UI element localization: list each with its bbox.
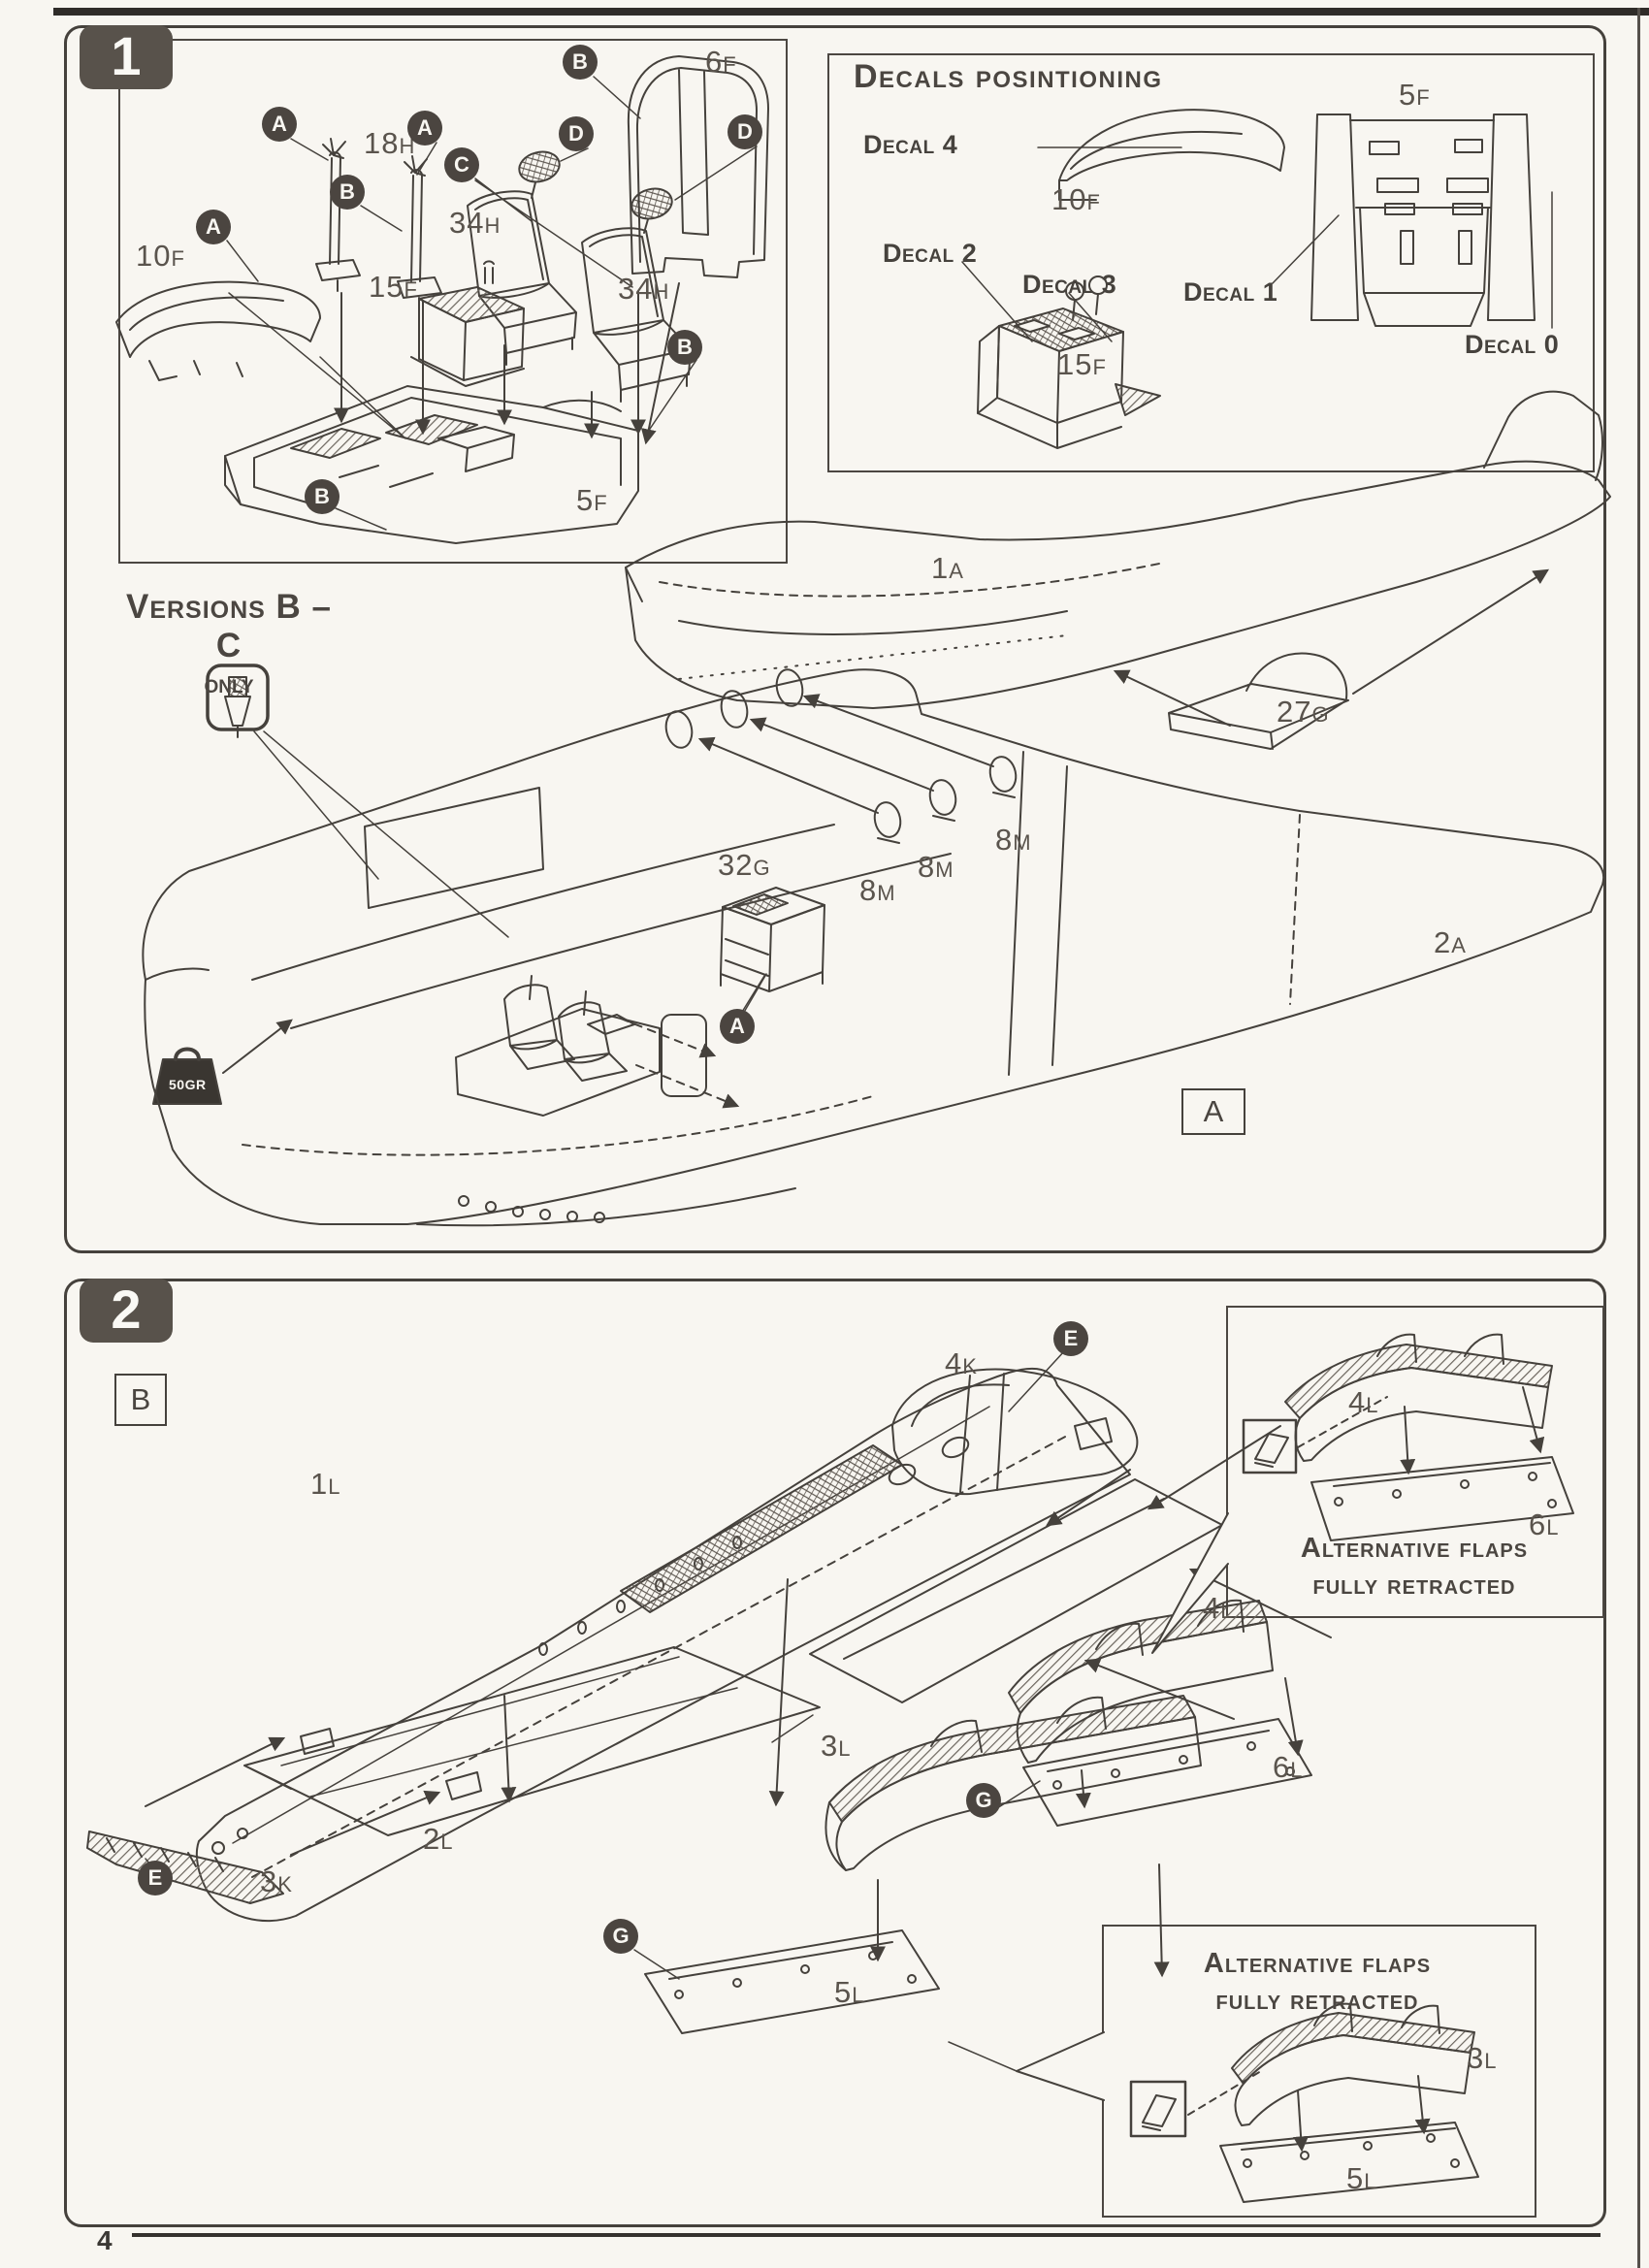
callout-A: A bbox=[720, 1009, 755, 1044]
alt-top-title-line2: fully retracted bbox=[1242, 1570, 1587, 1602]
part-label-8M: 8M bbox=[995, 823, 1032, 858]
part-27G-drawing bbox=[1115, 570, 1547, 749]
callout-B: B bbox=[667, 330, 702, 365]
callout-A: A bbox=[262, 107, 297, 142]
part-label-15F: 15F bbox=[369, 270, 418, 305]
alt-bottom-drawing bbox=[949, 2004, 1478, 2202]
part-label-27G: 27G bbox=[1277, 695, 1330, 729]
cockpit-floor-5F-drawing bbox=[225, 386, 638, 543]
fuselage-left-half-2A-drawing bbox=[143, 667, 1603, 1226]
windows-8M-drawing bbox=[700, 697, 1018, 843]
part-label-2L: 2L bbox=[423, 1822, 454, 1857]
line-art bbox=[0, 0, 1649, 2268]
callout-A: A bbox=[196, 210, 231, 244]
step2-badge: 2 bbox=[80, 1279, 173, 1343]
callout-G: G bbox=[966, 1783, 1001, 1818]
weight-50gr-label: 50GR bbox=[169, 1077, 207, 1092]
callout-A: A bbox=[407, 111, 442, 146]
part-label-8M: 8M bbox=[859, 873, 896, 908]
decal4-label: Decal 4 bbox=[863, 130, 957, 160]
callout-D: D bbox=[727, 114, 762, 149]
decal1-label: Decal 1 bbox=[1183, 277, 1277, 308]
coaming-10F-drawing bbox=[116, 282, 320, 380]
part-label-3K: 3K bbox=[260, 1864, 293, 1899]
part-label-1A: 1A bbox=[931, 551, 964, 586]
part-label-15F-decals: 15F bbox=[1057, 347, 1107, 382]
callout-G: G bbox=[603, 1919, 638, 1954]
page-number: 4 bbox=[97, 2225, 113, 2256]
callout-E: E bbox=[1053, 1321, 1088, 1356]
part-label-5L: 5L bbox=[834, 1975, 865, 2010]
part-label-5L-alt: 5L bbox=[1346, 2161, 1377, 2196]
part-label-4L-alt: 4L bbox=[1348, 1385, 1379, 1420]
alt-bottom-title-line1: Alternative flaps bbox=[1117, 1948, 1517, 1980]
instruction-sheet-page: 1 2 10F 18H 15F 34H 34H 6F 5F A A A B B … bbox=[0, 0, 1649, 2268]
decal2-label: Decal 2 bbox=[883, 239, 977, 269]
decal-5F-frontview-drawing bbox=[1273, 114, 1552, 328]
callout-C: C bbox=[444, 147, 479, 182]
part-label-34H-left: 34H bbox=[449, 206, 501, 241]
version-tag-A: A bbox=[1181, 1088, 1245, 1135]
part-label-6L: 6L bbox=[1273, 1750, 1304, 1785]
decal3-label: Decal 3 bbox=[1022, 270, 1116, 300]
part-label-32G: 32G bbox=[718, 848, 771, 883]
part-label-8M: 8M bbox=[918, 850, 954, 885]
pilot-seat-left-drawing bbox=[468, 147, 576, 365]
version-tag-B: B bbox=[114, 1374, 167, 1426]
decals-box-title: Decals posintioning bbox=[854, 58, 1163, 96]
part-label-34H-right: 34H bbox=[618, 272, 669, 307]
part-label-10F: 10F bbox=[136, 239, 185, 274]
part-label-2A: 2A bbox=[1434, 925, 1467, 960]
part-label-10F-decals: 10F bbox=[1051, 182, 1101, 217]
cockpit-module-drawing bbox=[456, 976, 737, 1116]
decal0-label: Decal 0 bbox=[1465, 330, 1559, 360]
avionics-rack-32G-drawing bbox=[721, 888, 824, 1017]
versions-note-line2: only bbox=[122, 669, 336, 699]
part-label-6F: 6F bbox=[705, 45, 737, 80]
callout-D: D bbox=[559, 116, 594, 151]
callout-B: B bbox=[305, 479, 339, 514]
part-label-3L: 3L bbox=[821, 1729, 852, 1764]
flap-bay-5L-drawing bbox=[634, 1930, 939, 2033]
callout-E: E bbox=[138, 1861, 173, 1895]
versions-placement-lines bbox=[254, 731, 508, 937]
console-15F-drawing bbox=[411, 261, 524, 386]
part-label-6L-alt: 6L bbox=[1529, 1507, 1560, 1542]
callout-B: B bbox=[563, 45, 598, 80]
part-label-5F: 5F bbox=[576, 483, 608, 518]
step1-badge: 1 bbox=[80, 25, 173, 89]
fuselage-right-half-1A-drawing bbox=[626, 392, 1610, 708]
part-label-1L: 1L bbox=[310, 1467, 341, 1502]
versions-note-line1: Versions B – C bbox=[122, 588, 336, 665]
versions-note: Versions B – C only bbox=[122, 588, 336, 699]
alt-bottom-title-line2: fully retracted bbox=[1117, 1985, 1517, 2017]
part-label-4K: 4K bbox=[945, 1346, 978, 1381]
center-section-2L-drawing bbox=[244, 1579, 820, 1835]
part-label-3L-alt: 3L bbox=[1467, 2041, 1498, 2076]
callout-B: B bbox=[330, 175, 365, 210]
part-label-4L: 4L bbox=[1203, 1591, 1234, 1626]
part-label-5F-decals: 5F bbox=[1399, 78, 1431, 113]
